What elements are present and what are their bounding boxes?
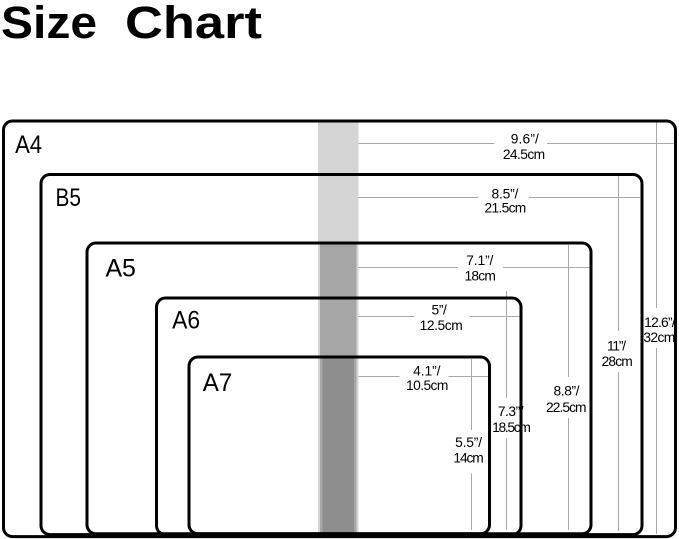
svg-text:5”/: 5”/ — [432, 302, 447, 317]
svg-text:Size: Size — [1, 0, 97, 48]
svg-text:18cm: 18cm — [465, 269, 496, 284]
svg-text:12.5cm: 12.5cm — [420, 318, 463, 333]
svg-text:A6: A6 — [172, 307, 200, 335]
svg-text:7.3”/: 7.3”/ — [498, 404, 524, 419]
svg-text:21.5cm: 21.5cm — [485, 201, 527, 216]
svg-text:Chart: Chart — [125, 0, 262, 48]
svg-text:28cm: 28cm — [602, 354, 633, 369]
svg-text:14cm: 14cm — [453, 450, 483, 465]
svg-text:8.5”/: 8.5”/ — [492, 187, 519, 202]
svg-text:12.6”/: 12.6”/ — [644, 315, 676, 330]
svg-text:B5: B5 — [55, 184, 81, 212]
svg-text:7.1”/: 7.1”/ — [466, 253, 493, 268]
svg-text:4.1”/: 4.1”/ — [413, 364, 440, 379]
svg-text:A4: A4 — [15, 131, 42, 159]
svg-text:5.5”/: 5.5”/ — [455, 435, 482, 450]
svg-text:24.5cm: 24.5cm — [503, 147, 545, 162]
svg-text:8.8”/: 8.8”/ — [554, 384, 580, 399]
svg-text:18.5cm: 18.5cm — [492, 420, 531, 435]
svg-text:11”/: 11”/ — [607, 339, 626, 354]
svg-text:22.5cm: 22.5cm — [546, 400, 587, 415]
svg-text:10.5cm: 10.5cm — [406, 378, 448, 393]
svg-text:A5: A5 — [105, 255, 136, 283]
svg-text:9.6”/: 9.6”/ — [511, 132, 539, 147]
svg-text:32cm: 32cm — [643, 330, 675, 345]
svg-text:A7: A7 — [203, 369, 233, 397]
